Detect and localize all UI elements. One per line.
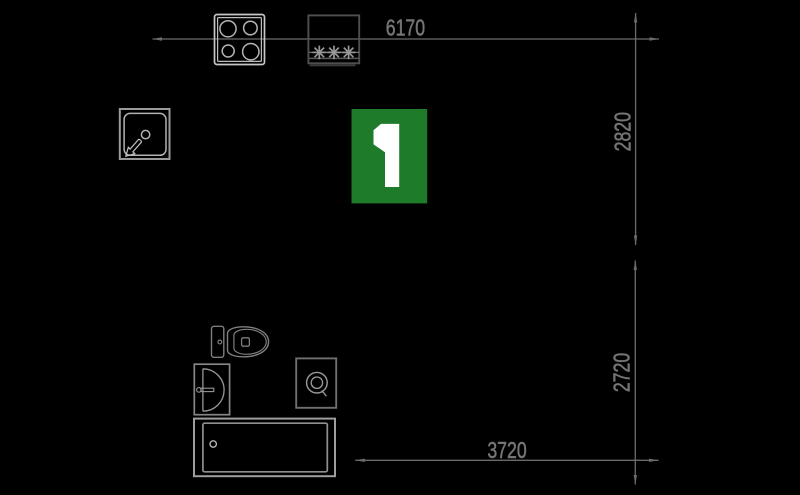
svg-text:3720: 3720	[487, 438, 526, 464]
svg-text:2720: 2720	[609, 353, 635, 392]
svg-text:6170: 6170	[386, 15, 425, 41]
svg-text:2820: 2820	[610, 112, 636, 151]
